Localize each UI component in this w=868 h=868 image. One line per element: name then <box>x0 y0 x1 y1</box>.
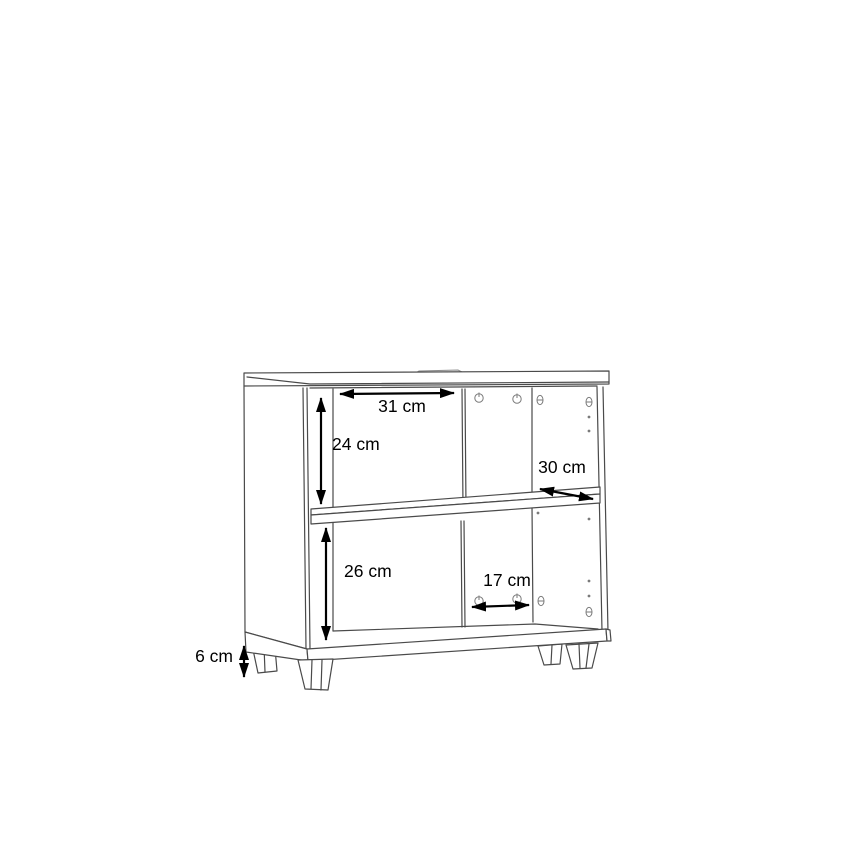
label-bottom-compartment-height: 26 cm <box>344 561 392 581</box>
label-top-inner-width: 31 cm <box>378 396 426 416</box>
label-top-compartment-height: 24 cm <box>332 434 380 454</box>
back-right-leg <box>538 644 562 665</box>
label-shelf-depth: 30 cm <box>538 457 586 477</box>
top-panel <box>244 370 609 386</box>
cabinet-line-drawing: 31 cm 24 cm 30 cm 26 cm 17 cm 6 cm <box>0 0 868 868</box>
furniture-dimension-diagram: 31 cm 24 cm 30 cm 26 cm 17 cm 6 cm <box>0 0 868 868</box>
arrow-top-inner-width <box>340 393 454 394</box>
label-right-compartment-width: 17 cm <box>483 570 531 590</box>
dimension-labels: 31 cm 24 cm 30 cm 26 cm 17 cm 6 cm <box>195 396 586 666</box>
left-side-panel <box>244 386 310 649</box>
front-left-leg <box>298 659 333 690</box>
front-right-leg <box>566 643 598 669</box>
label-leg-height: 6 cm <box>195 646 233 666</box>
